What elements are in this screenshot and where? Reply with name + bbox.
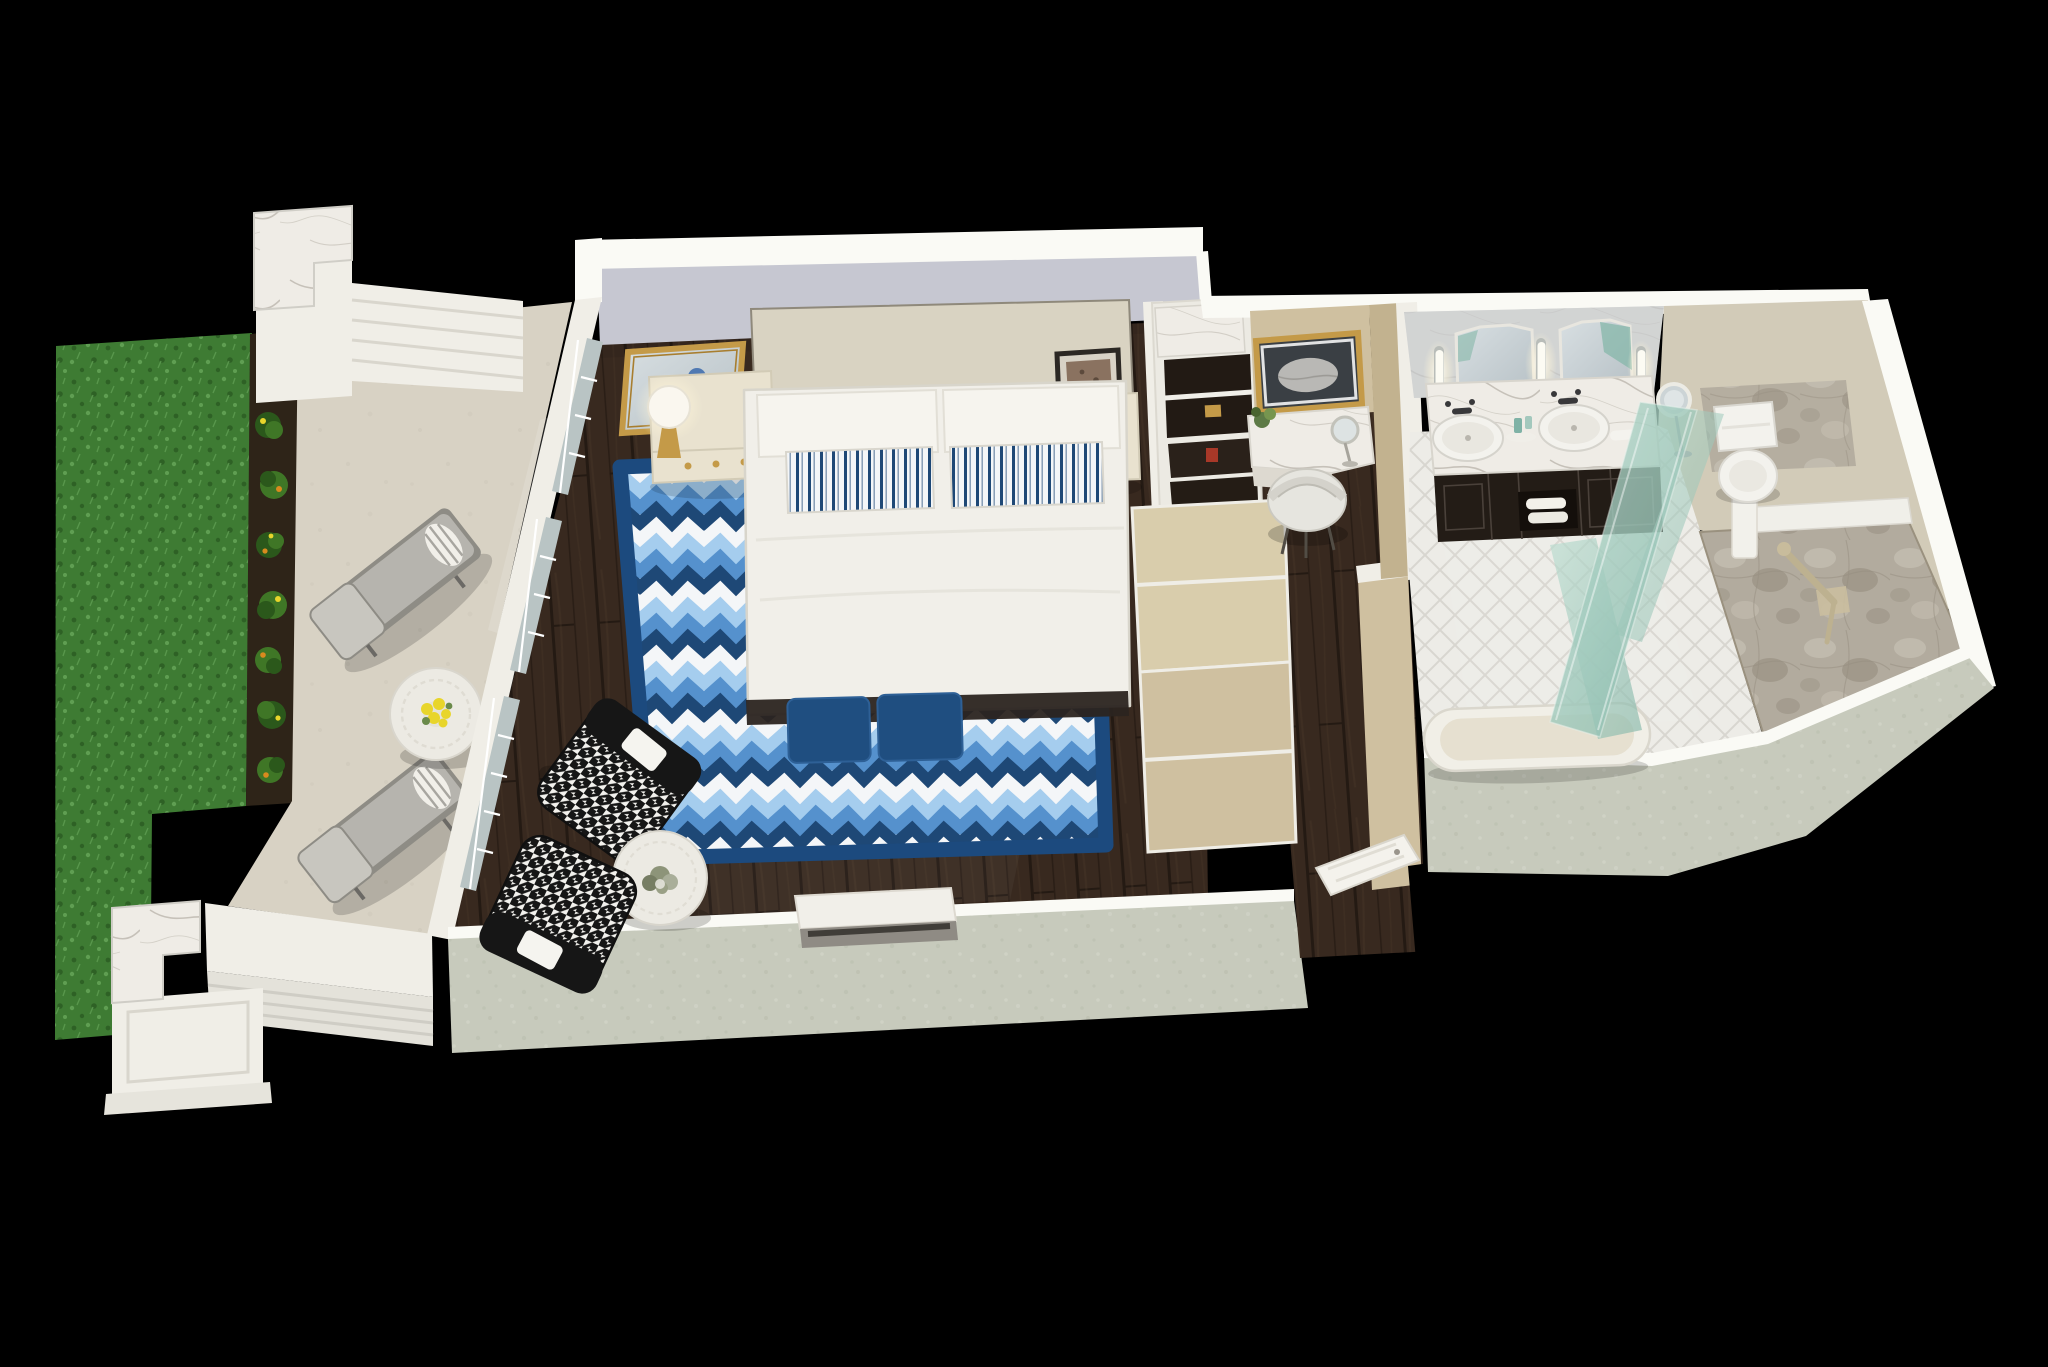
navy-ottoman-2: [877, 693, 963, 761]
vessel-sink-left: [1433, 415, 1503, 461]
rolled-towel: [1526, 497, 1566, 509]
king-bed: [744, 381, 1130, 725]
floorplan-render: [0, 0, 2048, 1367]
closet-lower-cabinets: [1132, 500, 1296, 852]
media-console: [795, 888, 958, 948]
doorway-opening: [1408, 860, 1455, 961]
closet-shelving: [1152, 297, 1262, 514]
pillow-striped: [950, 442, 1104, 508]
rolled-towel: [1528, 511, 1568, 523]
lighted-gold-mirror: [1256, 333, 1362, 412]
floorplan-stage: [0, 0, 2048, 1367]
navy-ottoman-1: [787, 697, 871, 763]
door-knob: [1394, 849, 1400, 855]
shelf-accent-gold: [1205, 405, 1222, 418]
vessel-sink-right: [1539, 405, 1609, 451]
shelf-accent-red: [1206, 448, 1218, 462]
towel-shelf: [1518, 489, 1578, 531]
pillow-striped: [786, 447, 934, 513]
